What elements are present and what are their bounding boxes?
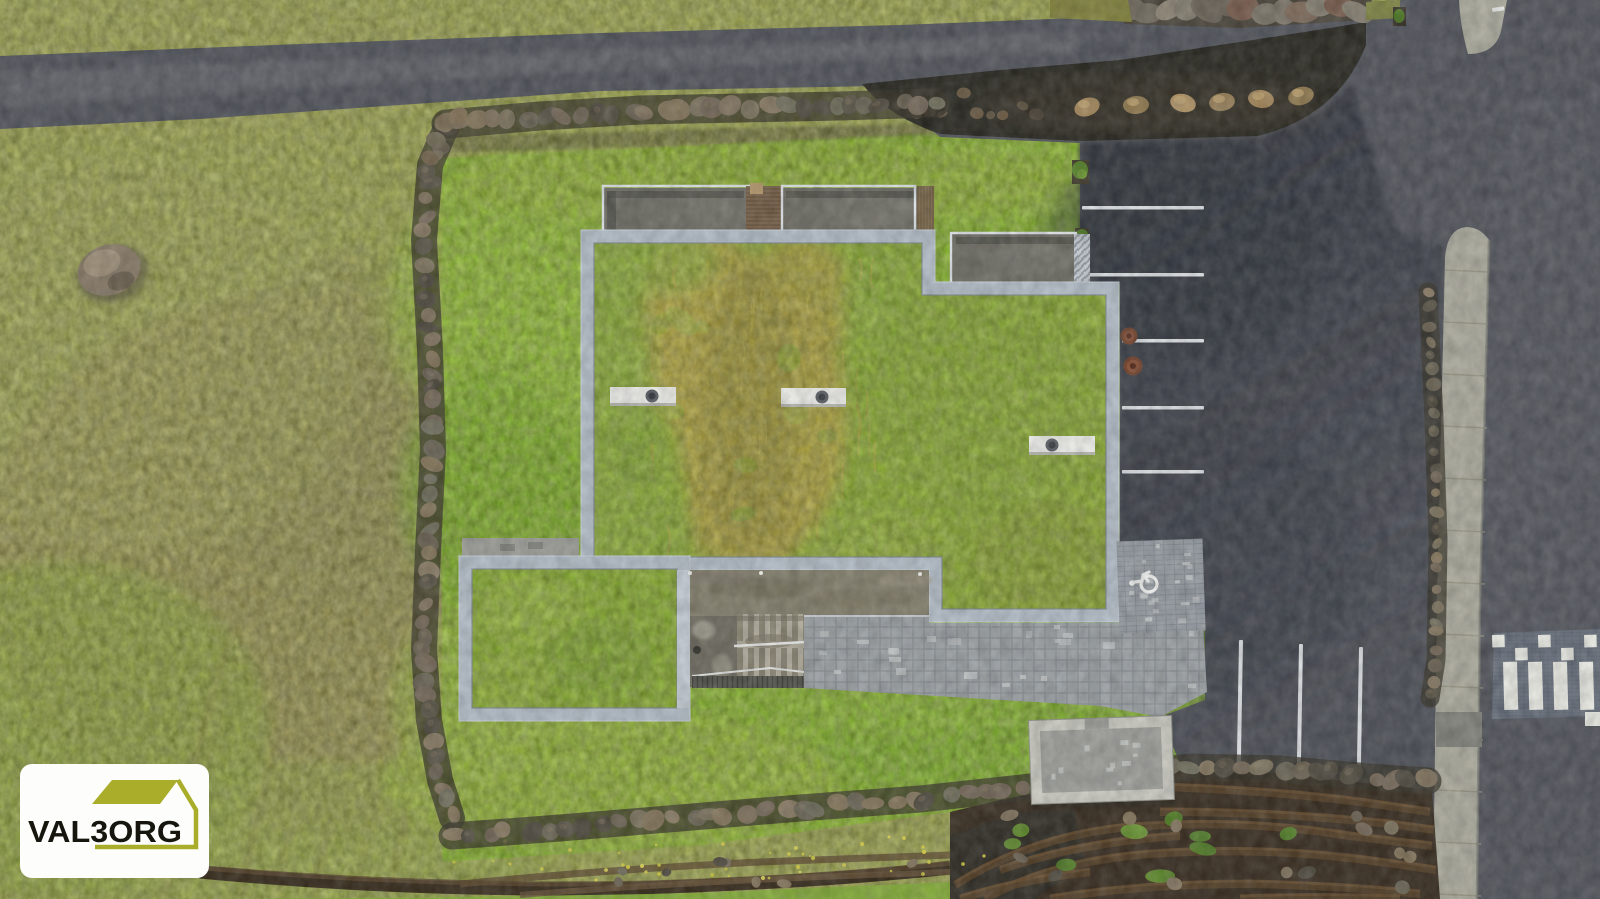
svg-text:VAL3ORG: VAL3ORG — [28, 814, 182, 849]
